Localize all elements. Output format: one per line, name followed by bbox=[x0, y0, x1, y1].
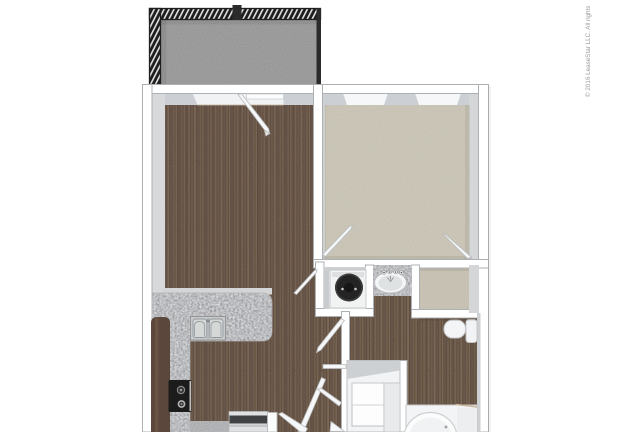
svg-text:© 2016 LeaseStar LLC. All righ: © 2016 LeaseStar LLC. All rights bbox=[584, 6, 592, 97]
